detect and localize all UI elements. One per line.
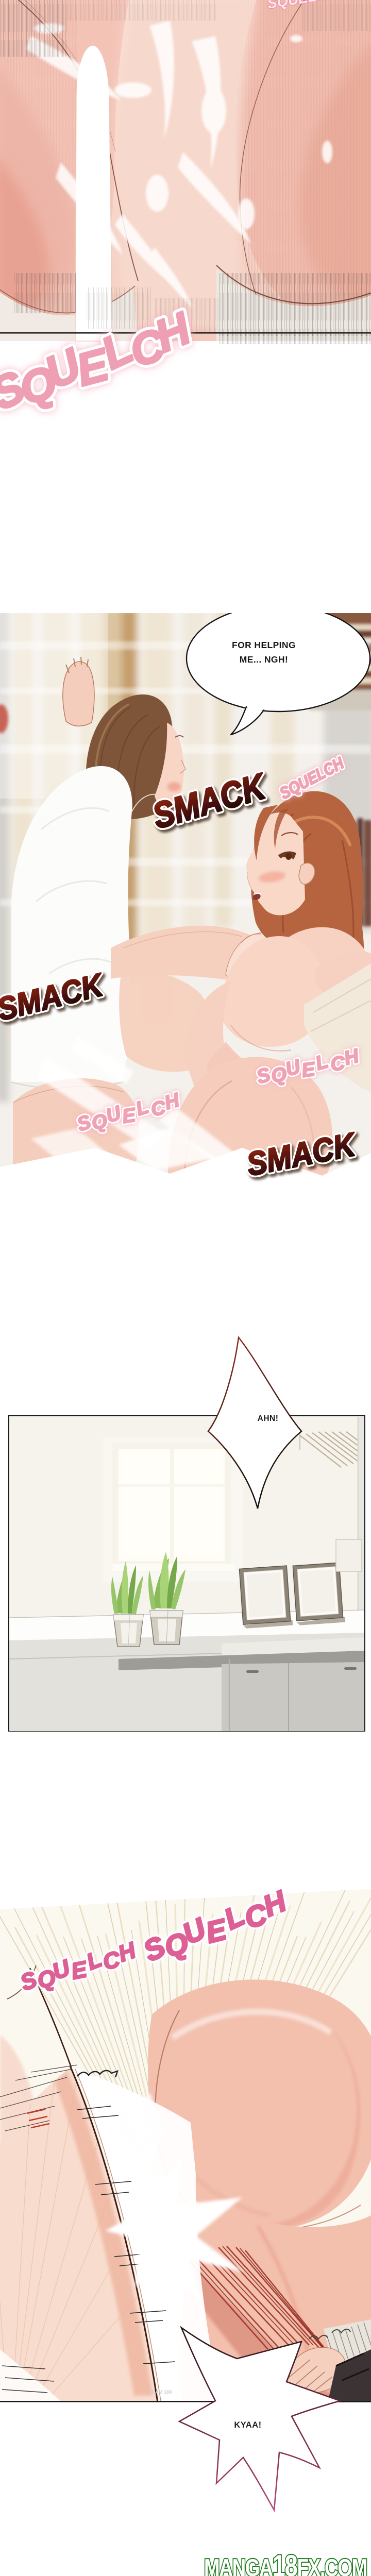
svg-text:TEAM 18X: TEAM 18X <box>149 2389 172 2395</box>
svg-text:MANGA18FX.COM: MANGA18FX.COM <box>204 2550 367 2576</box>
svg-text:ME... NGH!: ME... NGH! <box>240 654 288 665</box>
svg-text:KYAA!: KYAA! <box>234 2420 261 2430</box>
svg-text:FOR HELPING: FOR HELPING <box>232 640 296 650</box>
svg-text:AHN!: AHN! <box>258 1414 279 1423</box>
